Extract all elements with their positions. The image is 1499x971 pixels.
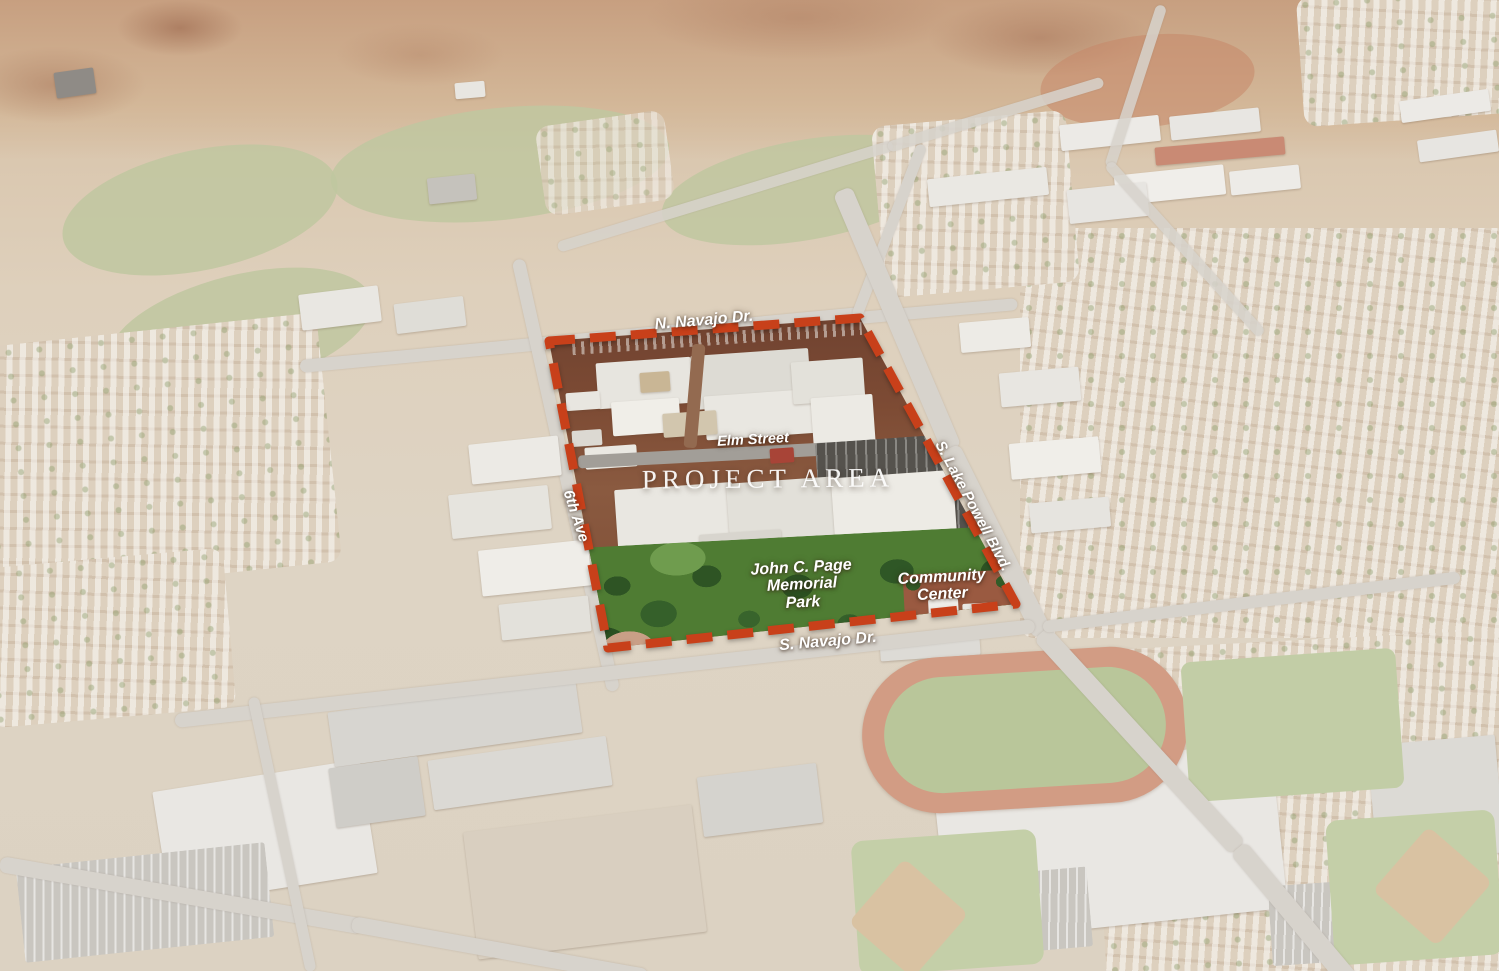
aerial-map: PROJECT AREA N. Navajo Dr. Elm Street 6t… [0,0,1499,971]
community-center-label: Community Center [897,566,987,605]
project-area-label: PROJECT AREA [642,462,895,495]
park-label: John C. Page Memorial Park [750,556,854,613]
